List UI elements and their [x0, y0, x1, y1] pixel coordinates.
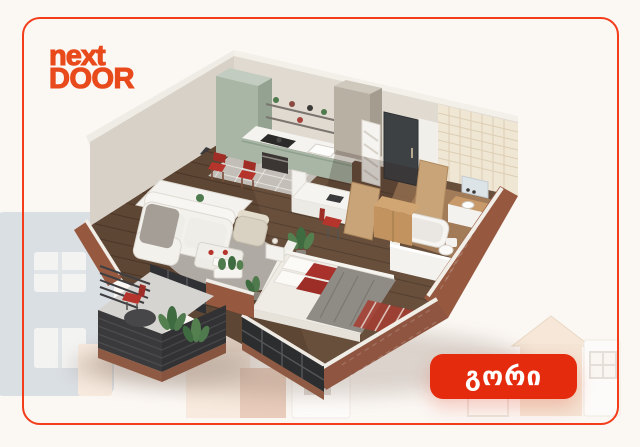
location-button-label: გორი	[465, 362, 542, 392]
bathroom-door	[414, 160, 448, 220]
ad-banner: next DOOR გორი	[0, 0, 640, 447]
location-button[interactable]: გორი	[430, 354, 577, 399]
nextdoor-logo: next DOOR	[49, 45, 134, 90]
logo-line-door: DOOR	[49, 68, 134, 91]
balcony-table	[124, 309, 156, 327]
